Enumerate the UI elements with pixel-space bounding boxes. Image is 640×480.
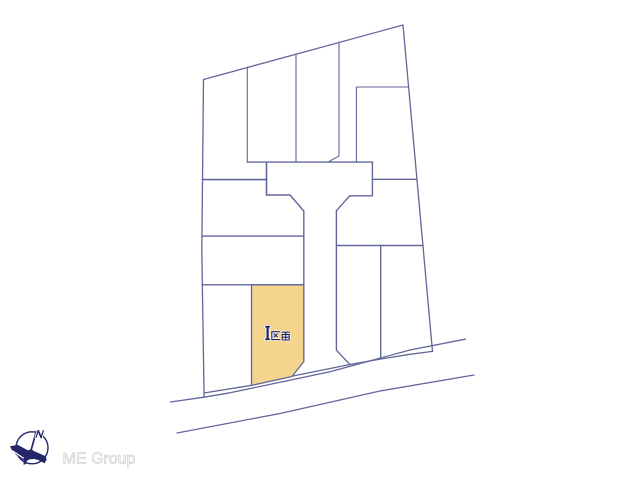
- svg-text:ME Group: ME Group: [63, 451, 136, 468]
